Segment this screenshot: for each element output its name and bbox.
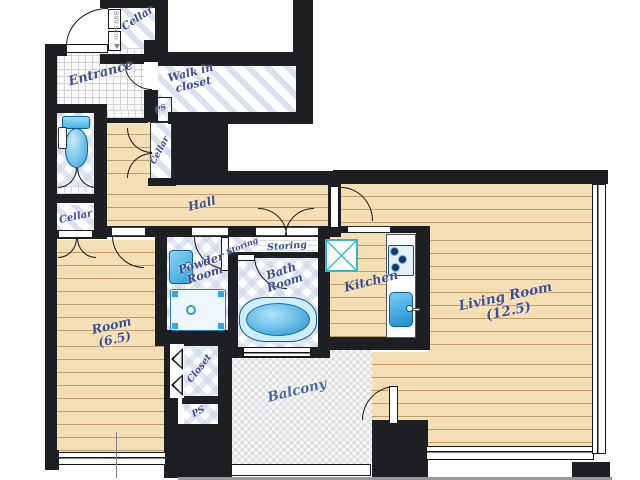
balcony-pillar-right bbox=[372, 420, 428, 478]
refrigerator-space-icon bbox=[325, 239, 358, 272]
wall bbox=[148, 178, 176, 186]
window-living-bottom bbox=[426, 446, 594, 460]
bathtub bbox=[246, 303, 310, 336]
balcony-railing bbox=[231, 464, 371, 476]
pan-corner bbox=[218, 291, 224, 297]
dimension-label: B99.5cm bbox=[112, 11, 120, 40]
pan-corner bbox=[172, 323, 178, 329]
balcony-floor bbox=[223, 350, 372, 466]
wall bbox=[107, 118, 148, 123]
outer-wall-top-living bbox=[333, 170, 608, 184]
survey-mark bbox=[102, 458, 130, 459]
stove-burner bbox=[390, 247, 399, 256]
wall bbox=[144, 40, 158, 64]
bath-door-leaf bbox=[237, 254, 255, 261]
wall bbox=[572, 462, 610, 478]
doorway bbox=[192, 227, 228, 236]
wall bbox=[296, 60, 313, 124]
wall bbox=[225, 171, 337, 185]
wall bbox=[218, 330, 232, 430]
room-floor bbox=[57, 334, 164, 460]
balcony-door-leaf bbox=[389, 386, 398, 424]
doorway bbox=[112, 227, 145, 236]
paper-holder bbox=[58, 127, 67, 149]
pan-drain bbox=[186, 305, 196, 315]
floor-plan: B99.5cm Cellar Entrance Walk in closet P… bbox=[0, 0, 640, 480]
window-bath bbox=[243, 347, 311, 357]
wall bbox=[416, 226, 430, 350]
wall bbox=[322, 337, 430, 350]
dimension-arrow-icon bbox=[114, 44, 120, 49]
entry-door-arc bbox=[66, 8, 108, 46]
balcony-pillar-left bbox=[172, 424, 232, 478]
pan-corner bbox=[172, 291, 178, 297]
living-door-leaf bbox=[330, 186, 339, 228]
wall bbox=[45, 450, 59, 470]
wall bbox=[158, 52, 313, 66]
entry-door-leaf bbox=[66, 44, 108, 53]
stove-burner bbox=[398, 255, 407, 264]
pan-corner bbox=[218, 323, 224, 329]
wall bbox=[172, 112, 228, 185]
wall bbox=[155, 226, 167, 336]
doorway bbox=[59, 231, 92, 237]
kitchen-faucet-handle bbox=[412, 308, 420, 311]
window-living-right bbox=[592, 184, 606, 454]
doorway bbox=[348, 227, 390, 232]
toilet-bowl bbox=[65, 128, 88, 168]
wall bbox=[94, 104, 107, 206]
wall bbox=[182, 396, 220, 404]
living-room-floor bbox=[333, 184, 592, 228]
survey-mark bbox=[116, 432, 117, 478]
